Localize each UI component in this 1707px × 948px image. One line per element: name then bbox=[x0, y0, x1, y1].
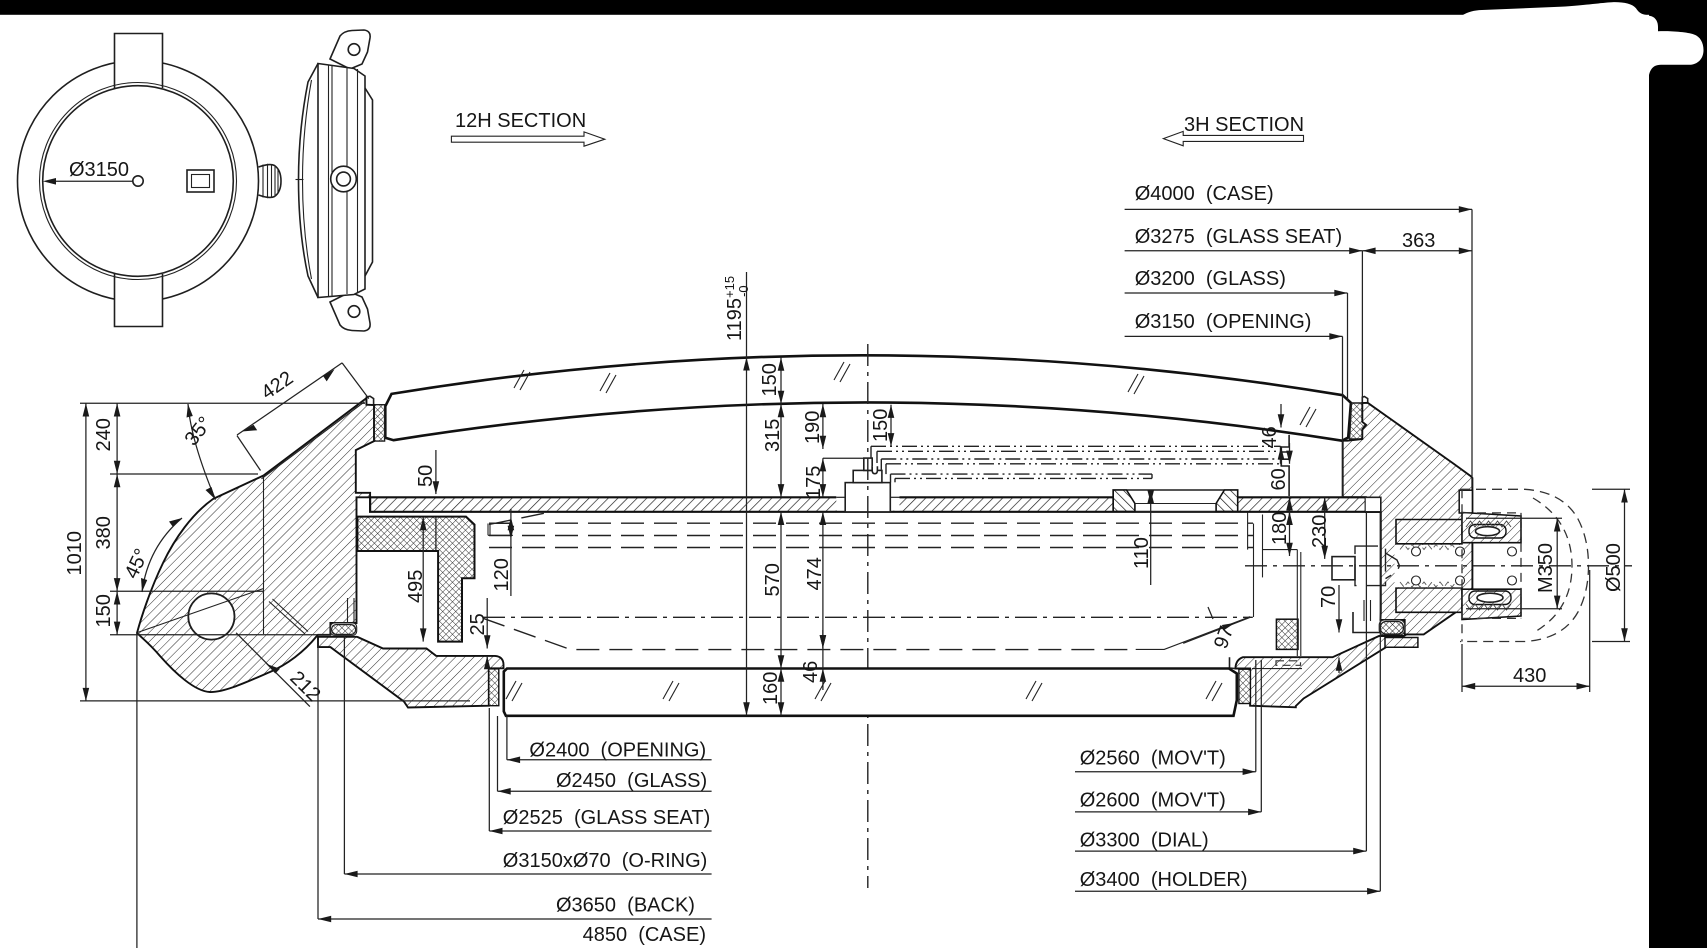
svg-text:Ø3650 (BACK): Ø3650 (BACK) bbox=[556, 895, 695, 917]
svg-text:70: 70 bbox=[1318, 586, 1340, 608]
svg-text:380: 380 bbox=[93, 516, 115, 549]
svg-text:495: 495 bbox=[405, 570, 427, 603]
svg-text:25: 25 bbox=[467, 613, 489, 635]
svg-text:150: 150 bbox=[870, 409, 892, 442]
svg-text:175: 175 bbox=[803, 466, 825, 499]
svg-text:240: 240 bbox=[93, 418, 115, 451]
svg-text:12H SECTION: 12H SECTION bbox=[455, 110, 586, 132]
svg-text:Ø3150 (OPENING): Ø3150 (OPENING) bbox=[1135, 311, 1312, 333]
svg-text:3H SECTION: 3H SECTION bbox=[1184, 114, 1304, 136]
svg-text:160: 160 bbox=[760, 672, 782, 705]
svg-text:Ø3400 (HOLDER): Ø3400 (HOLDER) bbox=[1080, 869, 1248, 891]
svg-text:Ø2525 (GLASS SEAT): Ø2525 (GLASS SEAT) bbox=[503, 807, 711, 829]
svg-text:190: 190 bbox=[802, 411, 824, 444]
svg-text:Ø3200 (GLASS): Ø3200 (GLASS) bbox=[1135, 268, 1286, 290]
svg-text:Ø3275 (GLASS SEAT): Ø3275 (GLASS SEAT) bbox=[1135, 226, 1343, 248]
svg-text:Ø500: Ø500 bbox=[1603, 543, 1625, 592]
svg-text:150: 150 bbox=[759, 363, 781, 396]
svg-text:474: 474 bbox=[804, 557, 826, 590]
svg-text:120: 120 bbox=[491, 558, 513, 591]
svg-text:50: 50 bbox=[415, 465, 437, 487]
svg-text:150: 150 bbox=[93, 594, 115, 627]
svg-text:Ø4000 (CASE): Ø4000 (CASE) bbox=[1135, 183, 1274, 205]
svg-text:110: 110 bbox=[1131, 537, 1153, 569]
svg-text:180: 180 bbox=[1269, 512, 1291, 545]
svg-text:M350: M350 bbox=[1535, 543, 1557, 593]
svg-text:Ø3150: Ø3150 bbox=[69, 159, 129, 181]
svg-text:60: 60 bbox=[1268, 468, 1290, 490]
svg-text:Ø2400 (OPENING): Ø2400 (OPENING) bbox=[529, 740, 706, 762]
svg-text:Ø3300 (DIAL): Ø3300 (DIAL) bbox=[1080, 829, 1209, 851]
svg-text:46: 46 bbox=[800, 661, 822, 683]
svg-text:Ø2600 (MOV'T): Ø2600 (MOV'T) bbox=[1080, 790, 1226, 812]
svg-text:Ø3150xØ70 (O-RING): Ø3150xØ70 (O-RING) bbox=[503, 850, 708, 872]
svg-text:363: 363 bbox=[1402, 230, 1435, 252]
svg-text:570: 570 bbox=[762, 563, 784, 596]
svg-text:46: 46 bbox=[1259, 426, 1281, 448]
svg-text:Ø2450 (GLASS): Ø2450 (GLASS) bbox=[556, 770, 707, 792]
svg-text:230: 230 bbox=[1309, 515, 1331, 548]
svg-text:4850 (CASE): 4850 (CASE) bbox=[583, 924, 706, 946]
svg-text:1010: 1010 bbox=[64, 531, 86, 576]
svg-text:430: 430 bbox=[1513, 665, 1546, 687]
svg-text:Ø2560 (MOV'T): Ø2560 (MOV'T) bbox=[1080, 748, 1226, 770]
svg-text:315: 315 bbox=[762, 419, 784, 452]
